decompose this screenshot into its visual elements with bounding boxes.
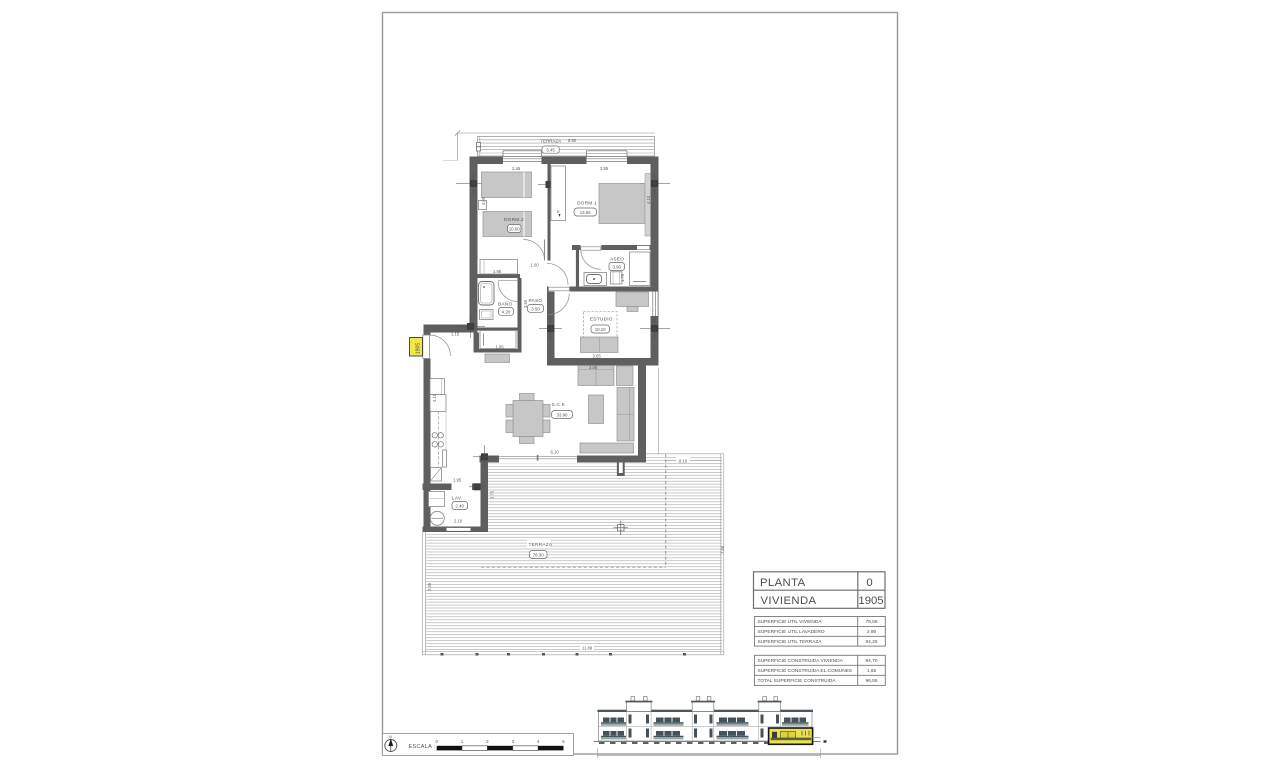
- svg-text:BAÑO: BAÑO: [498, 301, 512, 308]
- svg-text:1905: 1905: [416, 343, 422, 355]
- svg-text:SUPERFICIE UTIL LAVADERO: SUPERFICIE UTIL LAVADERO: [758, 629, 825, 635]
- svg-text:LAV.: LAV.: [452, 496, 462, 502]
- svg-text:ESTUDIO: ESTUDIO: [590, 317, 613, 323]
- svg-text:3.05: 3.05: [593, 353, 602, 358]
- svg-text:6.10: 6.10: [551, 449, 560, 454]
- svg-text:ASEO: ASEO: [610, 257, 624, 263]
- svg-text:3.50: 3.50: [531, 306, 540, 311]
- svg-text:1.95: 1.95: [496, 344, 505, 349]
- svg-text:84,25: 84,25: [865, 639, 877, 645]
- svg-text:SUPERFICIE CONSTRUIDA EL.COMUN: SUPERFICIE CONSTRUIDA EL.COMUNES: [758, 668, 853, 674]
- svg-text:2,90: 2,90: [867, 629, 877, 635]
- svg-text:1.95: 1.95: [453, 478, 462, 483]
- svg-text:VIVIENDA: VIVIENDA: [761, 595, 817, 607]
- svg-text:96,55: 96,55: [865, 678, 877, 684]
- svg-text:SUPERFICIE CONSTRUIDA VIVIENDA: SUPERFICIE CONSTRUIDA VIVIENDA: [758, 658, 844, 664]
- svg-text:4.05: 4.05: [481, 196, 486, 205]
- svg-text:3.50: 3.50: [523, 299, 528, 308]
- svg-text:3.90: 3.90: [612, 265, 621, 270]
- svg-text:ESCALA :: ESCALA :: [409, 744, 436, 750]
- svg-text:11.88: 11.88: [582, 646, 593, 651]
- svg-text:10.60: 10.60: [509, 227, 521, 232]
- svg-text:TOTAL SUPERFICIE CONSTRUIDA: TOTAL SUPERFICIE CONSTRUIDA: [758, 678, 837, 684]
- svg-text:4.20: 4.20: [502, 309, 511, 314]
- svg-text:3.80: 3.80: [589, 365, 598, 370]
- svg-text:4.10: 4.10: [432, 393, 437, 402]
- svg-text:E: E: [557, 209, 560, 214]
- svg-text:PLANTA: PLANTA: [760, 577, 806, 589]
- svg-text:DORM.1: DORM.1: [577, 201, 597, 207]
- svg-text:2.45: 2.45: [512, 166, 521, 171]
- svg-text:2.40: 2.40: [455, 504, 464, 509]
- svg-text:2.10: 2.10: [454, 519, 463, 524]
- svg-text:1.95: 1.95: [493, 269, 502, 274]
- svg-text:78.30: 78.30: [533, 553, 545, 558]
- svg-text:TERRAZA: TERRAZA: [541, 138, 562, 143]
- svg-text:4.10: 4.10: [646, 195, 651, 204]
- svg-text:7.66: 7.66: [720, 545, 725, 554]
- svg-text:2.45: 2.45: [427, 582, 432, 591]
- svg-text:94,70: 94,70: [865, 658, 877, 664]
- svg-text:3.85: 3.85: [600, 166, 609, 171]
- svg-text:SUPERFICIE UTIL VIVIENDA: SUPERFICIE UTIL VIVIENDA: [758, 619, 823, 625]
- svg-text:1.70: 1.70: [620, 273, 625, 282]
- svg-text:S.C.K: S.C.K: [552, 402, 566, 408]
- svg-text:10.10: 10.10: [595, 327, 607, 332]
- svg-text:3.70: 3.70: [490, 490, 495, 499]
- svg-text:DORM.2: DORM.2: [504, 217, 524, 223]
- svg-text:1,65: 1,65: [867, 668, 877, 674]
- svg-text:1905: 1905: [858, 595, 883, 607]
- svg-text:8.10: 8.10: [679, 458, 688, 463]
- svg-text:33.90: 33.90: [557, 413, 569, 418]
- svg-text:0: 0: [866, 577, 872, 589]
- svg-text:1.00: 1.00: [531, 263, 540, 268]
- svg-text:79,95: 79,95: [865, 619, 877, 625]
- svg-text:PASO: PASO: [529, 298, 543, 304]
- svg-text:5.45: 5.45: [546, 147, 555, 152]
- svg-text:6.90: 6.90: [568, 138, 577, 143]
- svg-text:SUPERFICIE UTIL TERRAZA: SUPERFICIE UTIL TERRAZA: [758, 639, 823, 645]
- svg-text:TERRAZA: TERRAZA: [529, 542, 553, 548]
- svg-text:1.15: 1.15: [451, 332, 460, 337]
- svg-text:13.65: 13.65: [580, 210, 592, 215]
